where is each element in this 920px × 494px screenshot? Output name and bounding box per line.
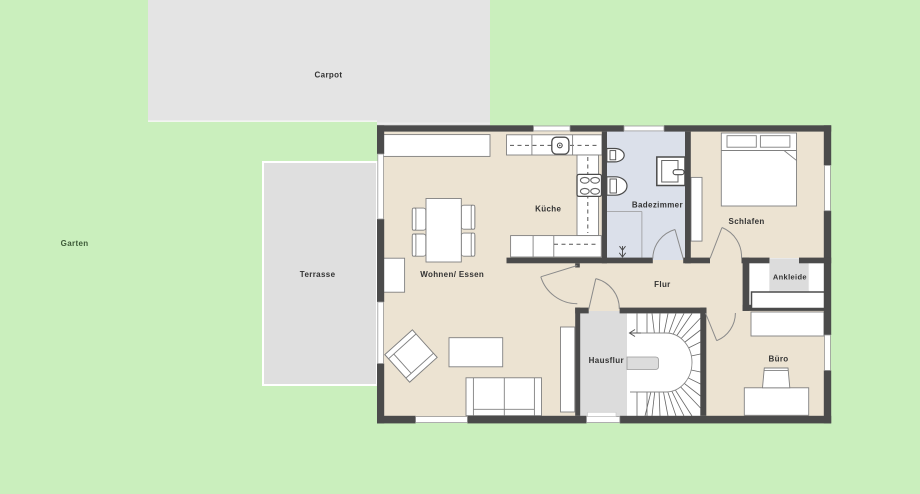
svg-text:Flur: Flur bbox=[654, 280, 671, 289]
svg-text:Carpot: Carpot bbox=[315, 71, 343, 80]
svg-text:Badezimmer: Badezimmer bbox=[632, 200, 683, 209]
svg-text:Garten: Garten bbox=[61, 239, 89, 248]
svg-text:Hausflur: Hausflur bbox=[589, 356, 624, 365]
svg-text:Terrasse: Terrasse bbox=[300, 270, 336, 279]
svg-text:Schlafen: Schlafen bbox=[729, 217, 765, 226]
svg-text:Wohnen/ Essen: Wohnen/ Essen bbox=[420, 270, 484, 279]
svg-text:Küche: Küche bbox=[535, 204, 561, 213]
svg-text:Ankleide: Ankleide bbox=[773, 273, 807, 282]
svg-text:Büro: Büro bbox=[768, 355, 788, 364]
